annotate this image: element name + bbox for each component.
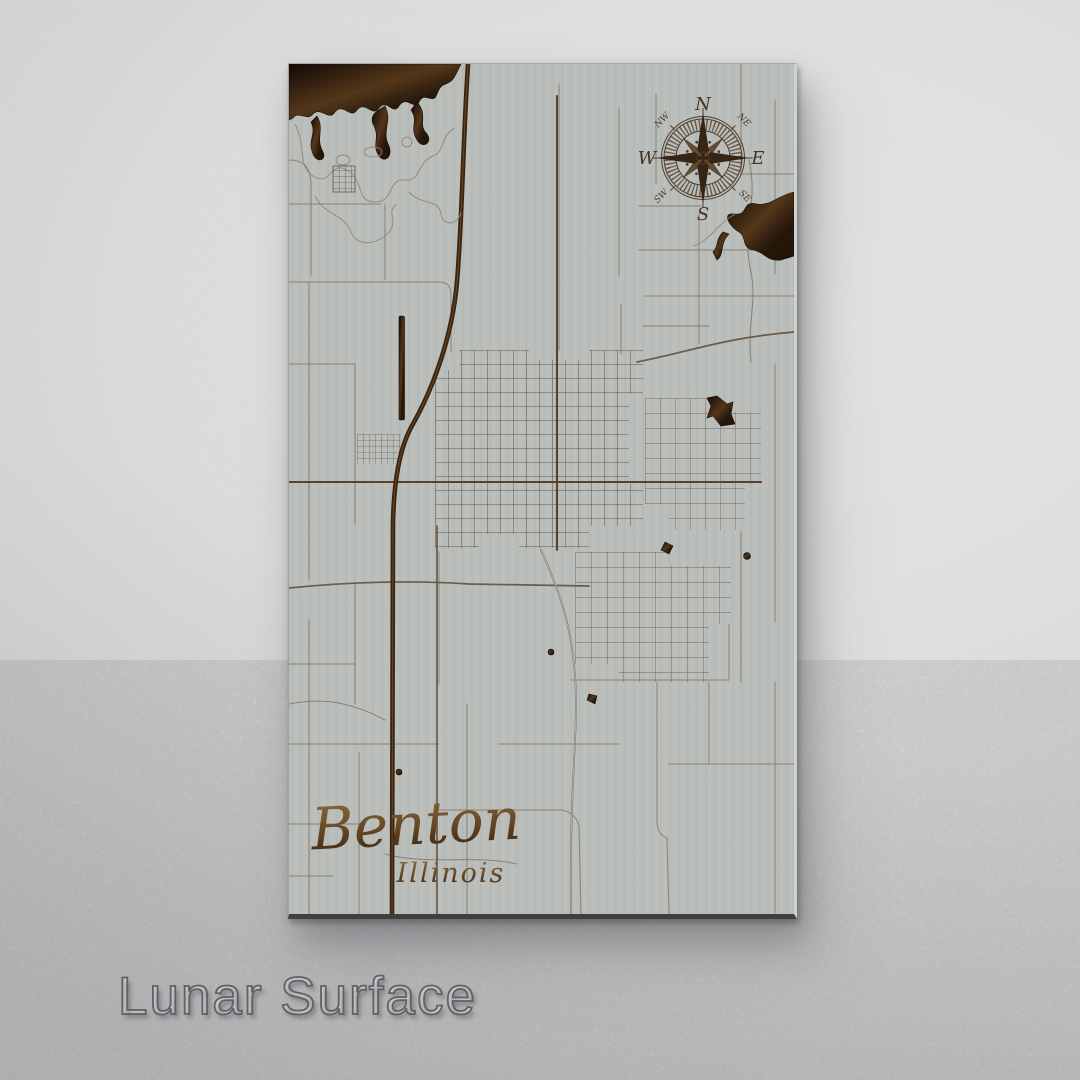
- product-photo: N E S W NW NE SW SE Benton Illinois Luna…: [0, 0, 1080, 1080]
- finish-label: Lunar Surface: [118, 970, 477, 1023]
- vignette: [0, 0, 1080, 1080]
